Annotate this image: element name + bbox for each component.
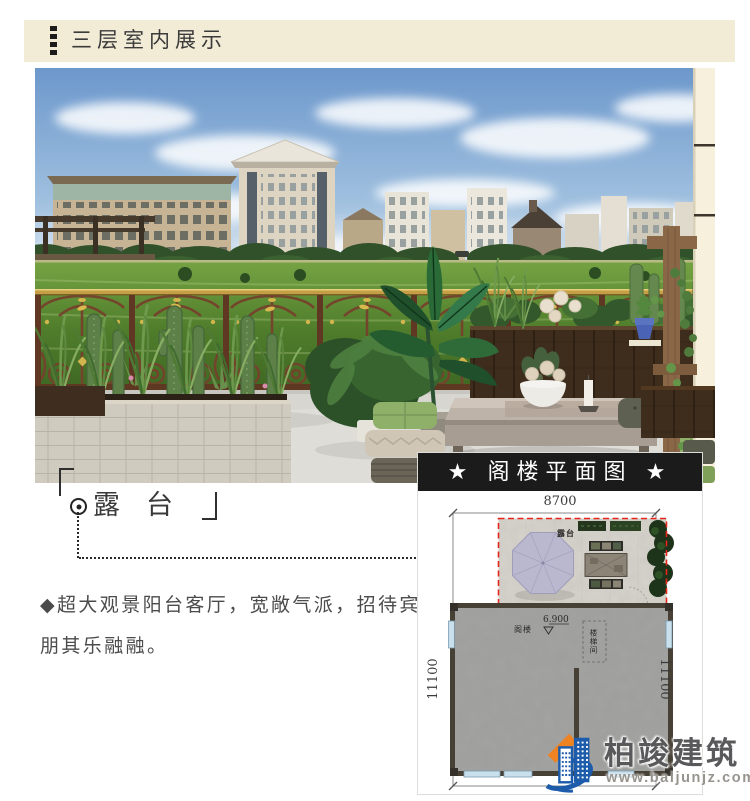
plan-dim-right: 11100: [658, 651, 672, 707]
callout-leader-vertical: [77, 512, 79, 558]
terrace-photo: [35, 68, 715, 483]
terrace-photo-art: [35, 68, 715, 483]
plan-dim-left: 11100: [426, 651, 440, 707]
plan-label-attic: 阁楼: [514, 624, 532, 635]
logo: 柏竣建筑 www.baijunjz.com: [540, 726, 748, 798]
floorplan-title: ★ 阁楼平面图 ★: [418, 453, 702, 491]
callout-bracket-right: [202, 492, 217, 520]
page: 三层室内展示: [0, 0, 750, 801]
callout-label: 露台: [93, 483, 199, 522]
logo-buildings-icon: [540, 726, 602, 794]
logo-website: www.baijunjz.com: [606, 770, 750, 786]
plan-furniture: [585, 541, 627, 589]
description-text: ◆超大观景阳台客厅，宽敞气派，招待宾朋其乐融融。: [40, 585, 432, 667]
header-accent-dashes-icon: [50, 26, 57, 57]
plan-label-elevation: 6.900: [543, 615, 569, 625]
page-title: 三层室内展示: [71, 20, 227, 62]
plan-terrace: [499, 519, 675, 608]
plan-dim-top: 8700: [418, 494, 702, 509]
plan-label-stairwell: 楼梯间: [589, 629, 598, 655]
logo-company: 柏竣建筑: [604, 728, 740, 773]
callout-bracket-left: [59, 468, 74, 496]
plan-label-terrace: 露台: [557, 528, 575, 539]
header-band: 三层室内展示: [24, 20, 735, 62]
